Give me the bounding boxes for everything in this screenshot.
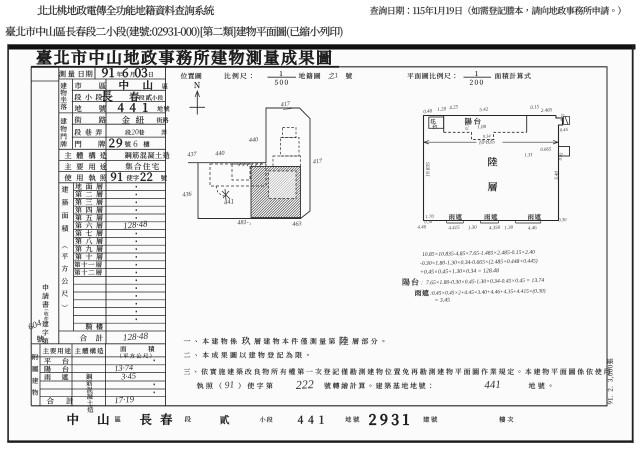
svg-text:0.15: 0.15 [530, 105, 540, 111]
svg-text:1.30: 1.30 [468, 226, 478, 232]
svg-text:0.30: 0.30 [464, 121, 470, 130]
svg-text:1.31: 1.31 [524, 153, 533, 158]
svg-text:1.30: 1.30 [504, 226, 514, 232]
svg-text:4.46: 4.46 [528, 226, 538, 232]
svg-text:4.415: 4.415 [448, 226, 460, 232]
svg-text::: : [421, 281, 423, 287]
svg-text:0.665: 0.665 [540, 147, 552, 153]
svg-text:1.70: 1.70 [425, 215, 434, 220]
svg-text:2.485: 2.485 [541, 108, 553, 114]
svg-text:128·48: 128·48 [123, 218, 149, 230]
svg-text:437: 437 [187, 151, 198, 159]
svg-text:0.45: 0.45 [560, 127, 569, 133]
svg-text:4.40: 4.40 [417, 225, 427, 231]
svg-text:0.40: 0.40 [423, 109, 433, 115]
svg-text:222: 222 [295, 377, 314, 392]
svg-text:3·45: 3·45 [120, 371, 136, 381]
svg-text:1.80: 1.80 [477, 125, 487, 131]
svg-text:441: 441 [484, 379, 501, 392]
svg-text:0.34: 0.34 [483, 133, 492, 138]
svg-text:440: 440 [215, 150, 226, 158]
svg-text:10.835: 10.835 [426, 162, 432, 177]
svg-text:128·48: 128·48 [122, 331, 148, 343]
svg-text:10·835: 10·835 [478, 139, 495, 146]
svg-text:440: 440 [249, 136, 260, 144]
svg-text:1.20: 1.20 [437, 107, 447, 113]
svg-text:417: 417 [313, 158, 324, 166]
svg-text:4.25: 4.25 [449, 105, 459, 111]
svg-text:5.42: 5.42 [479, 108, 489, 114]
svg-text:3.40: 3.40 [555, 171, 561, 181]
svg-text:481-₁: 481-₁ [237, 219, 251, 227]
svg-text:0.30: 0.30 [558, 217, 567, 223]
svg-text:17·19: 17·19 [114, 394, 135, 405]
svg-text:441: 441 [223, 198, 234, 206]
svg-text:4.350: 4.350 [489, 226, 501, 232]
svg-text:= 3.45: = 3.45 [434, 297, 450, 304]
svg-text:463: 463 [292, 220, 302, 228]
svg-text:436: 436 [182, 191, 193, 199]
svg-text:91: 91 [224, 380, 234, 391]
svg-text:20: 20 [131, 127, 140, 137]
